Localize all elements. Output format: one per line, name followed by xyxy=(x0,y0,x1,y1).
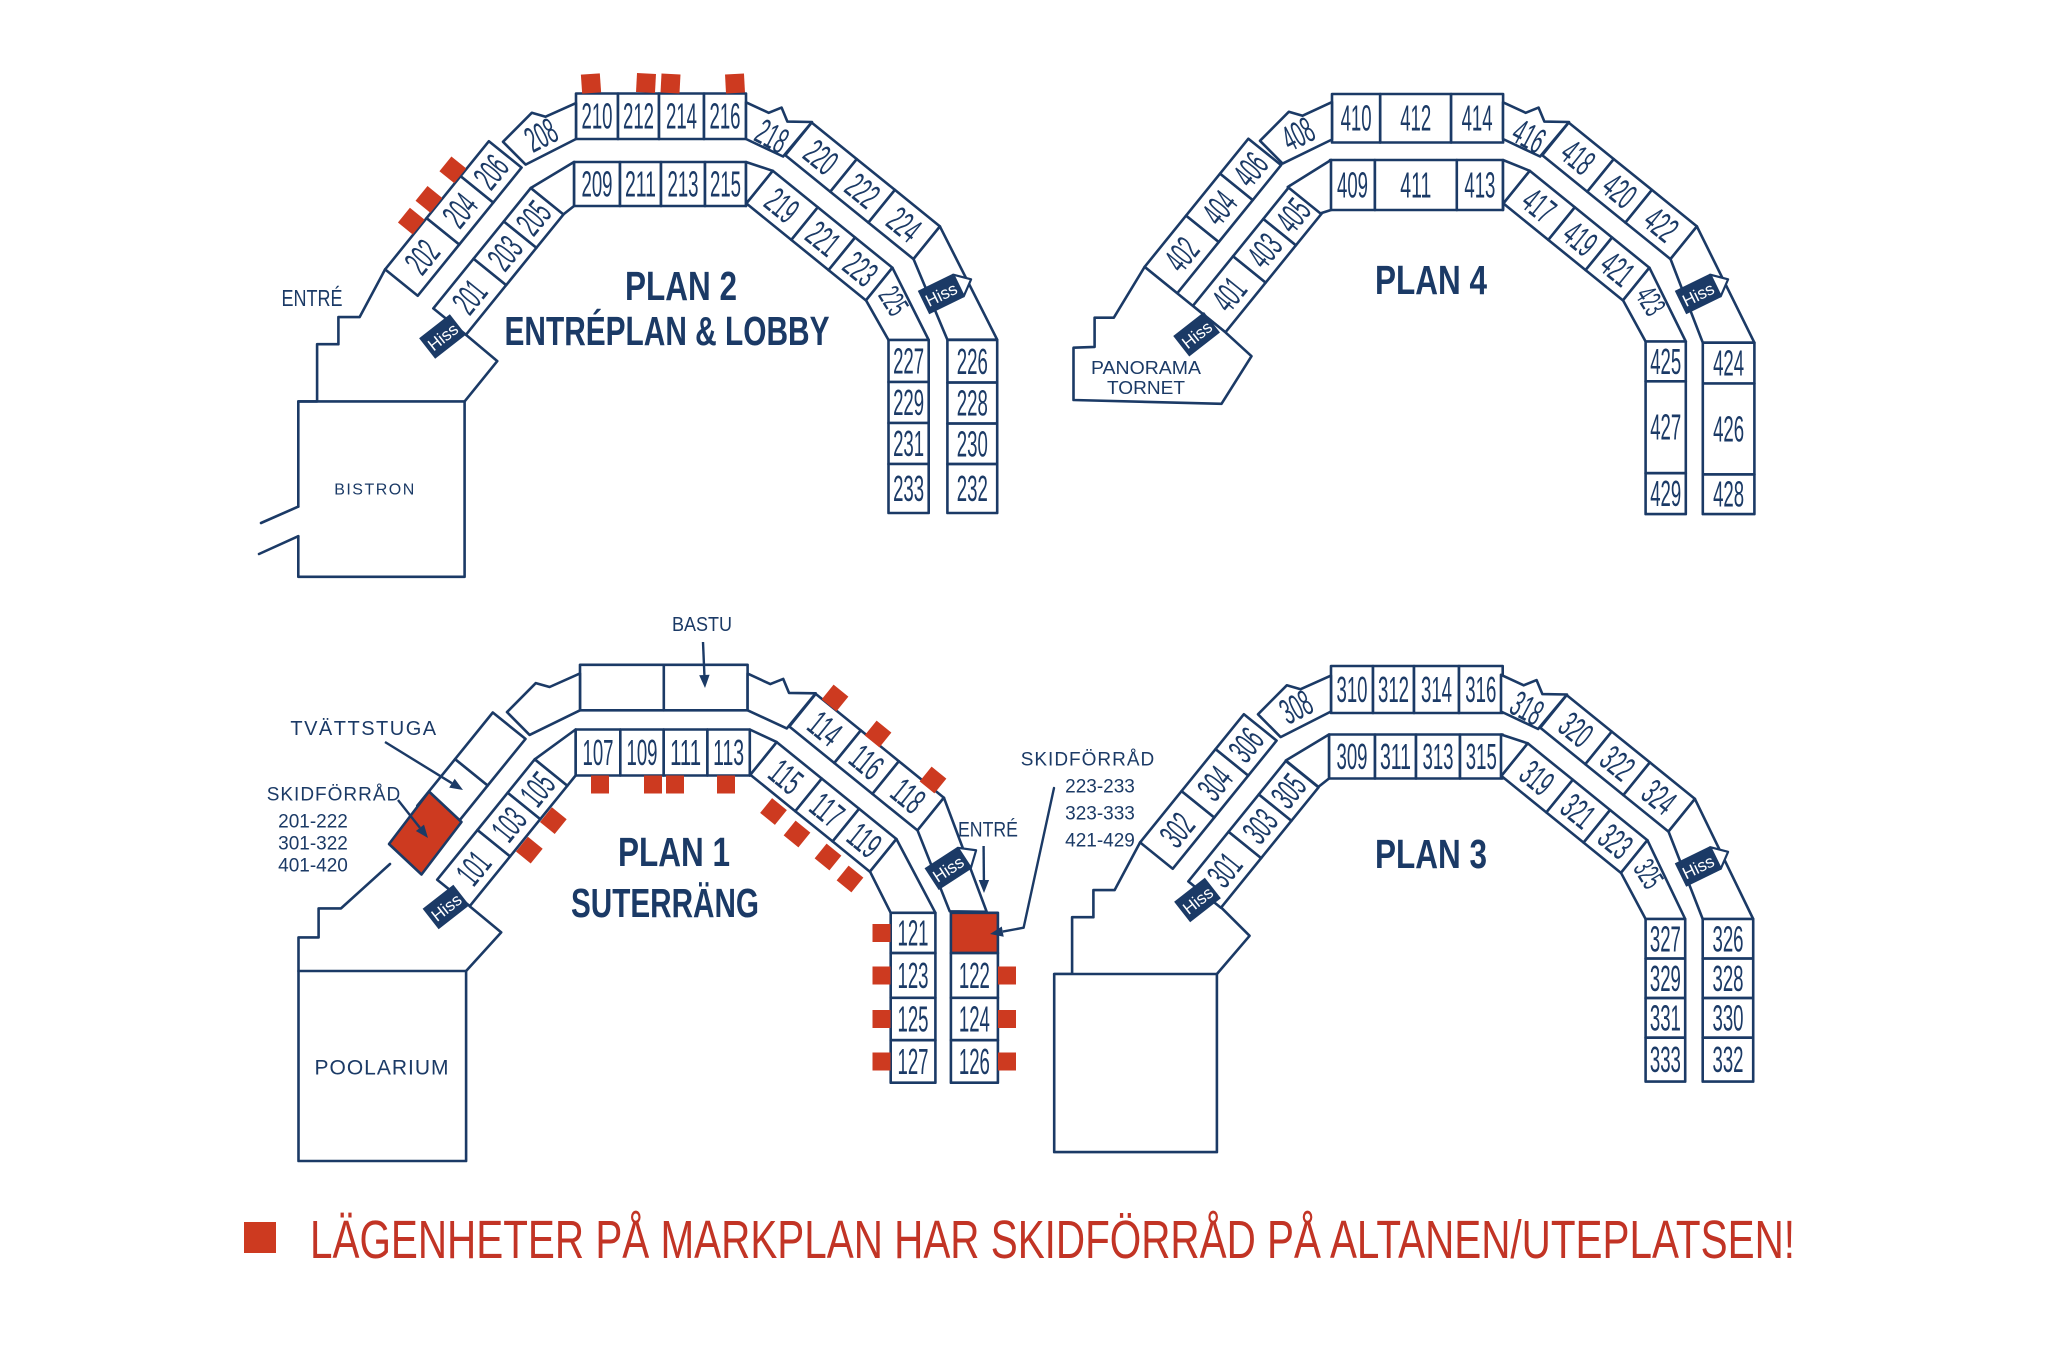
svg-text:331: 331 xyxy=(1650,997,1681,1038)
svg-text:410: 410 xyxy=(1341,98,1372,139)
svg-text:327: 327 xyxy=(1650,918,1681,959)
svg-text:121: 121 xyxy=(898,913,929,954)
svg-text:401-420: 401-420 xyxy=(278,856,348,877)
svg-text:PLAN 4: PLAN 4 xyxy=(1375,257,1487,303)
svg-text:209: 209 xyxy=(582,164,613,205)
svg-text:312: 312 xyxy=(1378,669,1409,710)
svg-text:212: 212 xyxy=(623,96,654,137)
svg-text:227: 227 xyxy=(893,341,924,382)
svg-text:125: 125 xyxy=(898,999,929,1040)
svg-text:213: 213 xyxy=(668,164,699,205)
svg-text:PLAN 1: PLAN 1 xyxy=(618,829,730,875)
svg-text:122: 122 xyxy=(959,955,990,996)
svg-text:330: 330 xyxy=(1713,997,1744,1038)
svg-text:126: 126 xyxy=(959,1041,990,1082)
svg-text:231: 231 xyxy=(893,423,924,464)
svg-text:ENTRÉPLAN & LOBBY: ENTRÉPLAN & LOBBY xyxy=(505,308,830,354)
svg-text:211: 211 xyxy=(625,164,656,205)
svg-text:328: 328 xyxy=(1713,958,1744,999)
svg-text:412: 412 xyxy=(1400,98,1431,139)
svg-text:113: 113 xyxy=(713,732,744,773)
svg-text:230: 230 xyxy=(957,423,988,464)
svg-text:127: 127 xyxy=(898,1041,929,1082)
svg-text:311: 311 xyxy=(1380,736,1411,777)
svg-text:233: 233 xyxy=(893,468,924,509)
svg-text:414: 414 xyxy=(1462,98,1493,139)
svg-text:424: 424 xyxy=(1713,343,1744,384)
svg-text:124: 124 xyxy=(959,999,990,1040)
svg-text:229: 229 xyxy=(893,382,924,423)
svg-text:329: 329 xyxy=(1650,958,1681,999)
svg-text:111: 111 xyxy=(670,732,701,773)
svg-text:ENTRÉ: ENTRÉ xyxy=(282,285,343,311)
svg-text:315: 315 xyxy=(1466,736,1497,777)
svg-text:228: 228 xyxy=(957,383,988,424)
svg-text:226: 226 xyxy=(957,341,988,382)
svg-text:BASTU: BASTU xyxy=(672,614,732,636)
svg-text:TORNET: TORNET xyxy=(1107,378,1185,398)
svg-text:332: 332 xyxy=(1713,1039,1744,1080)
svg-text:413: 413 xyxy=(1464,165,1495,206)
svg-text:301-322: 301-322 xyxy=(278,834,348,855)
svg-text:201-222: 201-222 xyxy=(278,812,348,833)
svg-text:216: 216 xyxy=(710,96,741,137)
svg-text:SUTERRÄNG: SUTERRÄNG xyxy=(571,880,759,926)
svg-text:426: 426 xyxy=(1713,408,1744,449)
svg-text:215: 215 xyxy=(710,164,741,205)
svg-text:210: 210 xyxy=(582,96,613,137)
svg-text:PLAN 3: PLAN 3 xyxy=(1375,831,1487,877)
svg-text:326: 326 xyxy=(1713,918,1744,959)
svg-text:409: 409 xyxy=(1337,165,1368,206)
svg-text:429: 429 xyxy=(1650,473,1681,514)
svg-text:313: 313 xyxy=(1423,736,1454,777)
svg-text:PLAN 2: PLAN 2 xyxy=(625,263,737,309)
svg-text:323-333: 323-333 xyxy=(1065,804,1135,825)
svg-text:214: 214 xyxy=(666,96,697,137)
svg-text:427: 427 xyxy=(1650,407,1681,448)
svg-text:109: 109 xyxy=(627,732,658,773)
svg-text:BISTRON: BISTRON xyxy=(334,482,416,499)
svg-text:316: 316 xyxy=(1465,669,1496,710)
svg-text:411: 411 xyxy=(1400,165,1431,206)
svg-text:232: 232 xyxy=(957,468,988,509)
svg-text:107: 107 xyxy=(583,732,614,773)
svg-text:425: 425 xyxy=(1650,341,1681,382)
svg-text:123: 123 xyxy=(898,955,929,996)
svg-text:PANORAMA: PANORAMA xyxy=(1091,358,1201,378)
svg-text:TVÄTTSTUGA: TVÄTTSTUGA xyxy=(290,718,437,740)
svg-text:SKIDFÖRRÅD: SKIDFÖRRÅD xyxy=(1021,750,1156,771)
svg-text:223-233: 223-233 xyxy=(1065,777,1135,798)
svg-text:314: 314 xyxy=(1421,669,1452,710)
svg-text:SKIDFÖRRÅD: SKIDFÖRRÅD xyxy=(267,785,402,806)
svg-text:POOLARIUM: POOLARIUM xyxy=(314,1057,449,1080)
svg-text:421-429: 421-429 xyxy=(1065,831,1135,852)
svg-text:LÄGENHETER PÅ MARKPLAN HAR SKI: LÄGENHETER PÅ MARKPLAN HAR SKIDFÖRRÅD PÅ… xyxy=(310,1210,1795,1270)
svg-text:ENTRÉ: ENTRÉ xyxy=(958,819,1018,842)
svg-text:333: 333 xyxy=(1650,1039,1681,1080)
svg-text:428: 428 xyxy=(1713,474,1744,515)
svg-text:309: 309 xyxy=(1337,736,1368,777)
svg-text:310: 310 xyxy=(1337,669,1368,710)
